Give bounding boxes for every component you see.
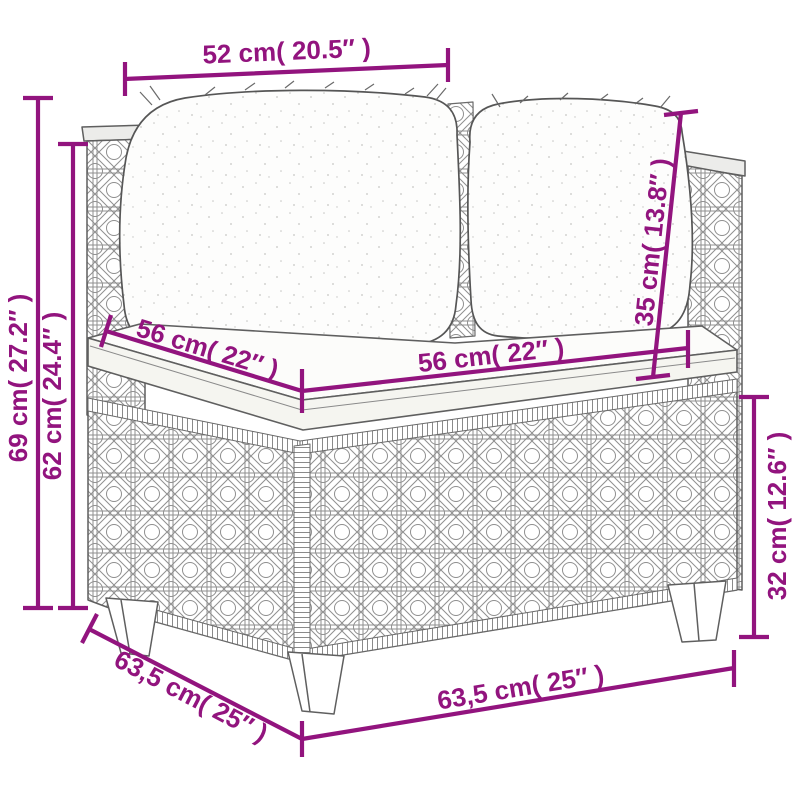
label-overall-height: 69 cm( 27.2″ ) — [3, 294, 33, 463]
front-corner-leg — [288, 652, 344, 714]
label-back-height: 62 cm( 24.4″ ) — [37, 312, 67, 481]
front-corner-roll — [294, 444, 310, 663]
label-base-height: 32 cm( 12.6″ ) — [762, 432, 792, 601]
label-overall-width: 63,5 cm( 25″ ) — [435, 659, 606, 716]
diagram-canvas: 52 cm( 20.5″ ) 69 cm( 27.2″ ) 62 cm( 24.… — [0, 0, 800, 800]
label-back-width: 52 cm( 20.5″ ) — [202, 32, 372, 69]
left-back-cushion — [120, 90, 461, 349]
product-dimension-diagram: 52 cm( 20.5″ ) 69 cm( 27.2″ ) 62 cm( 24.… — [0, 0, 800, 800]
label-overall-depth: 63,5 cm( 25″ ) — [109, 644, 272, 748]
